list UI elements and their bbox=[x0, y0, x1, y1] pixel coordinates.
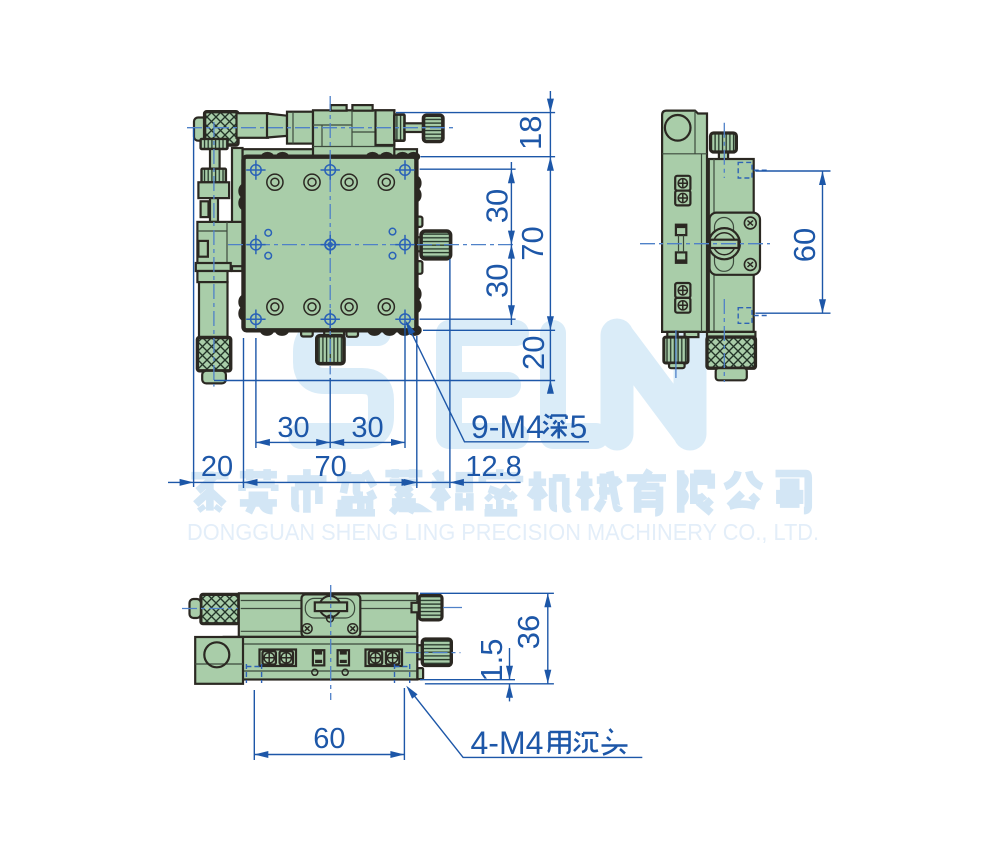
svg-text:DONGGUAN SHENG LING PRECISION: DONGGUAN SHENG LING PRECISION MACHINERY … bbox=[187, 519, 819, 545]
svg-text:12.8: 12.8 bbox=[465, 451, 521, 483]
svg-text:70: 70 bbox=[314, 451, 346, 483]
svg-text:20: 20 bbox=[516, 336, 551, 370]
svg-text:20: 20 bbox=[201, 451, 233, 483]
svg-text:60: 60 bbox=[313, 723, 345, 755]
svg-text:5: 5 bbox=[570, 409, 588, 445]
svg-text:30: 30 bbox=[480, 189, 515, 223]
svg-text:60: 60 bbox=[787, 228, 822, 262]
svg-text:30: 30 bbox=[480, 264, 515, 298]
svg-text:18: 18 bbox=[513, 116, 548, 150]
svg-text:30: 30 bbox=[277, 412, 309, 444]
svg-text:70: 70 bbox=[515, 226, 550, 260]
svg-text:1.5: 1.5 bbox=[474, 638, 509, 681]
svg-text:4-M4: 4-M4 bbox=[471, 725, 544, 761]
svg-text:9-M4: 9-M4 bbox=[471, 409, 544, 445]
svg-text:30: 30 bbox=[351, 412, 383, 444]
svg-text:36: 36 bbox=[511, 615, 546, 649]
